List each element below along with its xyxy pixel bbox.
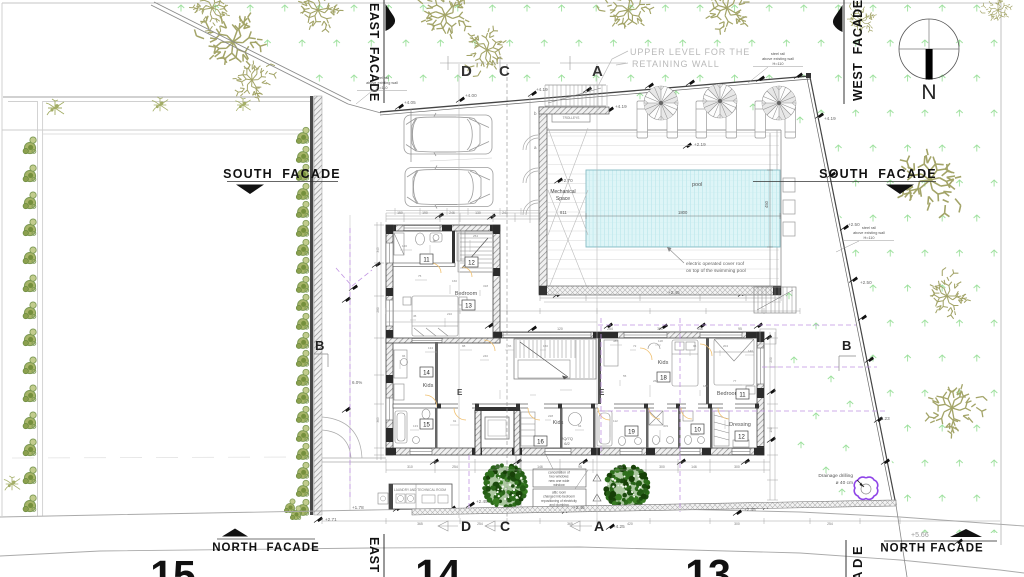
svg-text:14: 14 <box>423 371 430 377</box>
svg-text:steel rail: steel rail <box>375 76 389 80</box>
svg-text:300: 300 <box>659 465 665 469</box>
svg-text:+2.50: +2.50 <box>848 222 860 227</box>
svg-text:365: 365 <box>567 522 573 526</box>
svg-text:B: B <box>842 338 851 353</box>
svg-text:+2.45: +2.45 <box>573 505 585 510</box>
svg-text:146: 146 <box>697 327 703 331</box>
svg-text:246: 246 <box>449 211 455 215</box>
svg-text:262: 262 <box>653 379 658 383</box>
svg-text:180: 180 <box>703 384 708 388</box>
svg-text:120: 120 <box>557 327 563 331</box>
svg-text:300: 300 <box>657 327 663 331</box>
svg-text:13: 13 <box>685 551 731 577</box>
svg-text:15: 15 <box>423 423 430 429</box>
svg-text:254: 254 <box>477 522 483 526</box>
svg-text:TROLLEYS: TROLLEYS <box>563 116 580 120</box>
svg-text:above existing wall: above existing wall <box>853 231 885 235</box>
svg-text:+2.23: +2.23 <box>878 416 890 421</box>
svg-text:H=110: H=110 <box>863 236 874 240</box>
svg-text:+2.70: +2.70 <box>561 178 573 183</box>
svg-text:385: 385 <box>613 339 618 343</box>
svg-text:ø 40 cm: ø 40 cm <box>836 480 853 486</box>
svg-text:+2.19: +2.19 <box>694 142 706 147</box>
svg-text:450: 450 <box>764 200 769 208</box>
svg-text:Mechanical: Mechanical <box>550 189 575 195</box>
svg-text:13: 13 <box>465 304 472 310</box>
svg-text:75: 75 <box>418 274 422 278</box>
svg-text:12: 12 <box>738 435 745 441</box>
svg-text:19: 19 <box>628 430 635 436</box>
svg-text:120: 120 <box>402 244 407 248</box>
svg-text:318: 318 <box>483 284 488 288</box>
svg-text:95: 95 <box>578 465 582 469</box>
svg-text:146: 146 <box>537 465 543 469</box>
svg-text:SOUTH FACADE: SOUTH FACADE <box>223 167 341 181</box>
svg-text:D: D <box>461 63 472 80</box>
svg-text:150: 150 <box>543 344 548 348</box>
svg-text:210: 210 <box>447 312 452 316</box>
svg-text:Kids: Kids <box>553 420 564 426</box>
svg-text:300: 300 <box>734 465 740 469</box>
svg-text:309: 309 <box>663 424 668 428</box>
svg-text:310: 310 <box>407 465 413 469</box>
svg-text:H=110: H=110 <box>772 62 783 66</box>
svg-text:14: 14 <box>415 551 461 577</box>
svg-text:150: 150 <box>397 211 403 215</box>
svg-text:254: 254 <box>617 465 623 469</box>
svg-text:steel rail: steel rail <box>862 226 876 230</box>
svg-text:N: N <box>921 81 936 104</box>
svg-text:A: A <box>594 518 604 534</box>
svg-text:+4.00: +4.00 <box>465 93 477 98</box>
svg-text:+2.45: +2.45 <box>668 290 680 295</box>
svg-text:+4.05: +4.05 <box>404 100 416 105</box>
svg-text:55: 55 <box>623 374 627 378</box>
svg-text:NORTH FACADE: NORTH FACADE <box>880 543 983 555</box>
svg-text:+2.50: +2.50 <box>860 280 872 285</box>
svg-text:on top of the swimming pool: on top of the swimming pool <box>686 268 746 274</box>
svg-text:6/2: 6/2 <box>564 441 570 446</box>
svg-text:300: 300 <box>734 522 740 526</box>
svg-text:254: 254 <box>827 522 833 526</box>
svg-text:Kids: Kids <box>658 360 669 366</box>
svg-text:254: 254 <box>473 234 478 238</box>
svg-text:250: 250 <box>769 357 773 363</box>
svg-text:WEST FACADE: WEST FACADE <box>850 543 865 577</box>
svg-text:6.0%: 6.0% <box>352 380 362 385</box>
svg-text:+4.19: +4.19 <box>615 104 627 109</box>
svg-text:240: 240 <box>483 354 488 358</box>
svg-text:811: 811 <box>560 210 567 215</box>
svg-text:18: 18 <box>660 376 667 382</box>
svg-text:15: 15 <box>150 552 196 577</box>
svg-text:11: 11 <box>423 258 430 264</box>
svg-text:228: 228 <box>548 414 553 418</box>
svg-text:H=110: H=110 <box>376 86 387 90</box>
svg-text:11: 11 <box>739 393 746 399</box>
svg-text:above existing wall: above existing wall <box>366 81 398 85</box>
svg-text:+5.66: +5.66 <box>911 532 929 539</box>
svg-text:16: 16 <box>537 440 544 446</box>
svg-text:C: C <box>500 518 510 534</box>
svg-text:Space: Space <box>556 196 570 202</box>
svg-text:45: 45 <box>413 314 417 318</box>
svg-text:Kids: Kids <box>423 383 434 389</box>
svg-text:72: 72 <box>633 344 637 348</box>
svg-text:+4.19: +4.19 <box>824 116 836 121</box>
svg-text:D: D <box>461 518 471 534</box>
svg-text:+4.25: +4.25 <box>613 524 625 529</box>
svg-text:118: 118 <box>658 339 663 343</box>
svg-text:C: C <box>499 63 510 80</box>
svg-text:420: 420 <box>627 522 633 526</box>
svg-text:90: 90 <box>433 239 437 243</box>
svg-text:96: 96 <box>402 354 406 358</box>
svg-text:+2.71: +2.71 <box>325 517 337 522</box>
svg-text:91: 91 <box>453 419 457 423</box>
svg-text:64: 64 <box>578 424 582 428</box>
svg-text:WEST FACADE: WEST FACADE <box>851 0 865 101</box>
svg-text:SOUTH FACADE: SOUTH FACADE <box>819 167 937 181</box>
svg-text:EAST FACADE: EAST FACADE <box>367 537 381 577</box>
svg-text:146: 146 <box>691 465 697 469</box>
svg-text:window: window <box>553 483 565 487</box>
svg-text:RETAINING WALL: RETAINING WALL <box>632 59 720 69</box>
svg-text:Dressing: Dressing <box>729 422 751 428</box>
svg-text:+1.78: +1.78 <box>352 505 364 510</box>
svg-text:190: 190 <box>422 211 428 215</box>
svg-text:365: 365 <box>376 417 380 423</box>
svg-text:133: 133 <box>413 424 418 428</box>
svg-text:204: 204 <box>723 344 728 348</box>
svg-text:Drainage drilling: Drainage drilling <box>818 473 853 479</box>
svg-text:160: 160 <box>452 279 457 283</box>
svg-text:E: E <box>457 388 463 397</box>
svg-text:UPPER LEVEL FOR THE: UPPER LEVEL FOR THE <box>630 47 750 57</box>
svg-text:electric operated cover roof: electric operated cover roof <box>686 261 745 267</box>
svg-text:95: 95 <box>738 327 742 331</box>
svg-text:365: 365 <box>417 522 423 526</box>
svg-text:+2.45: +2.45 <box>476 499 488 504</box>
svg-text:345: 345 <box>376 247 380 253</box>
svg-text:134: 134 <box>428 346 433 350</box>
svg-text:88: 88 <box>462 344 466 348</box>
svg-text:254: 254 <box>452 465 458 469</box>
svg-text:NORTH FACADE: NORTH FACADE <box>212 542 320 554</box>
svg-text:66: 66 <box>508 344 512 348</box>
svg-text:10: 10 <box>694 428 701 434</box>
svg-text:E: E <box>599 388 605 397</box>
svg-text:Bedroom: Bedroom <box>455 291 478 297</box>
svg-text:130: 130 <box>475 211 481 215</box>
svg-text:above existing wall: above existing wall <box>762 57 794 61</box>
svg-text:LAUNDRY AND TECHNICAL ROOM: LAUNDRY AND TECHNICAL ROOM <box>394 488 446 492</box>
svg-text:95: 95 <box>693 344 697 348</box>
svg-text:B: B <box>315 338 324 353</box>
svg-text:12: 12 <box>468 261 475 267</box>
svg-text:280: 280 <box>376 307 380 313</box>
svg-text:1800: 1800 <box>678 210 688 215</box>
svg-text:steel rail: steel rail <box>771 52 785 56</box>
svg-text:pool: pool <box>692 182 702 188</box>
svg-text:+4.19: +4.19 <box>536 87 548 92</box>
svg-text:112: 112 <box>613 419 618 423</box>
svg-text:A: A <box>592 63 603 80</box>
svg-text:77: 77 <box>733 379 737 383</box>
svg-text:140: 140 <box>748 349 753 353</box>
svg-text:254: 254 <box>607 327 613 331</box>
svg-text:+2.45: +2.45 <box>744 507 756 512</box>
svg-text:300: 300 <box>495 465 501 469</box>
